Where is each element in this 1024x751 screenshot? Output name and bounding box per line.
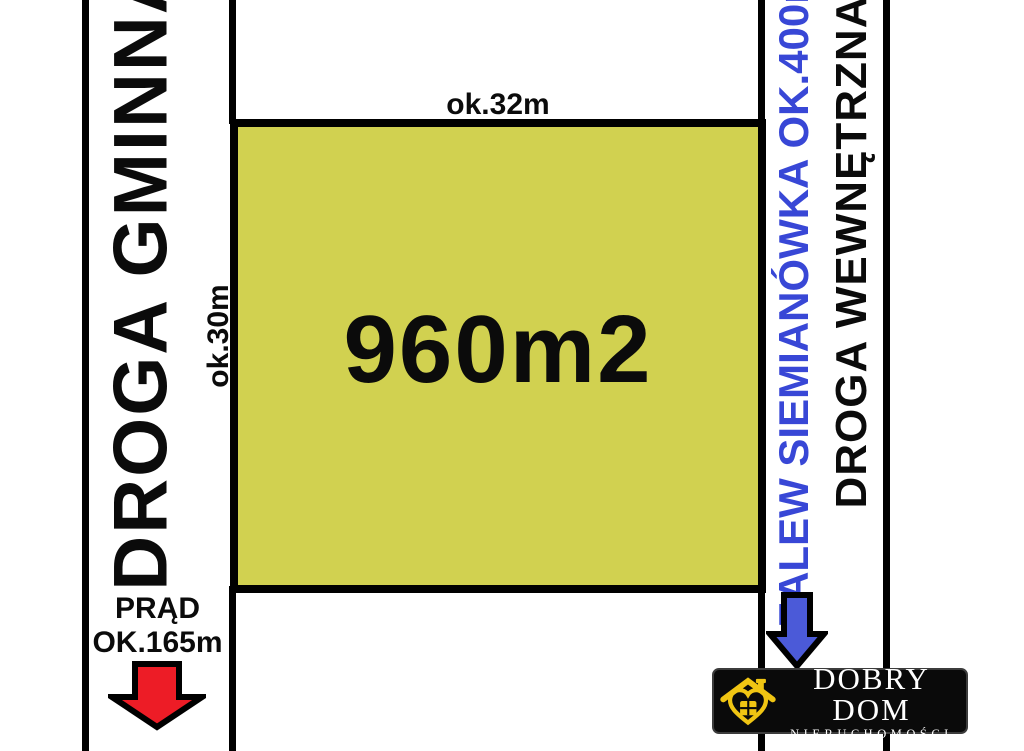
front-width-label: ok.32m xyxy=(230,88,766,122)
land-parcel: 960m2 xyxy=(230,119,766,593)
agency-subtitle: NIERUCHOMOŚCI xyxy=(777,728,966,741)
left-road-label: DROGA GMINNA xyxy=(98,0,185,591)
red-down-arrow-icon xyxy=(108,661,206,731)
right-road-label: DROGA WEWNĘTRZNA xyxy=(827,0,877,508)
house-heart-icon xyxy=(719,674,777,728)
power-note-line1: PRĄD xyxy=(85,592,230,626)
left-road-east-line-bottom xyxy=(229,586,236,751)
agency-title: DOBRY DOM xyxy=(777,663,966,725)
agency-name: DOBRY DOM NIERUCHOMOŚCI xyxy=(777,661,966,741)
power-distance-note: PRĄD OK.165m xyxy=(85,592,230,660)
right-road-east-line xyxy=(883,0,890,751)
agency-logo: DOBRY DOM NIERUCHOMOŚCI xyxy=(712,668,968,734)
power-note-line2: OK.165m xyxy=(85,626,230,660)
lake-distance-label: ZALEW SIEMIANÓWKA OK.400m xyxy=(770,0,818,628)
blue-down-arrow-icon xyxy=(766,592,828,670)
side-depth-label: ok.30m xyxy=(202,284,236,387)
parcel-area-label: 960m2 xyxy=(344,302,653,398)
plot-map: 960m2 ok.32m ok.30m DROGA GMINNA ZALEW S… xyxy=(0,0,1024,751)
